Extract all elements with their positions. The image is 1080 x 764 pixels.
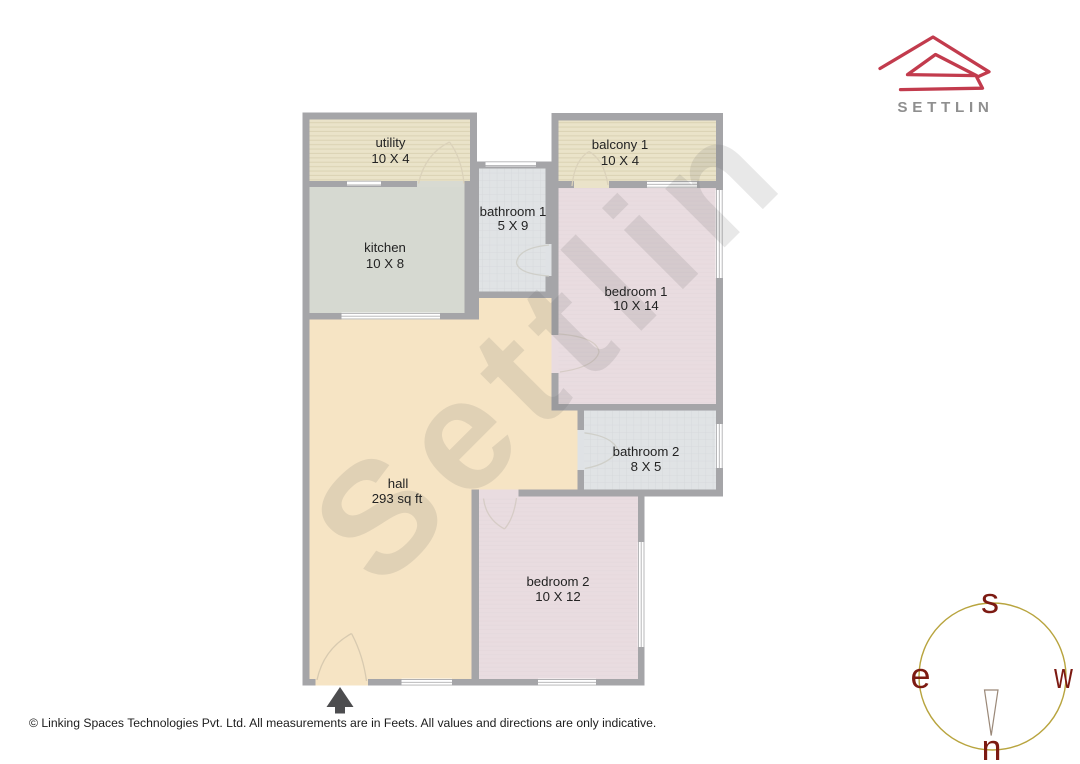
svg-text:hall: hall <box>388 476 409 491</box>
svg-text:utility: utility <box>375 135 405 150</box>
svg-text:10 X 4: 10 X 4 <box>601 153 639 168</box>
svg-text:bedroom 1: bedroom 1 <box>604 284 667 299</box>
svg-text:bathroom 1: bathroom 1 <box>480 204 547 219</box>
svg-text:8 X 5: 8 X 5 <box>631 459 662 474</box>
svg-text:10 X 14: 10 X 14 <box>613 298 658 313</box>
svg-text:10 X 12: 10 X 12 <box>535 589 580 604</box>
svg-text:293 sq ft: 293 sq ft <box>372 491 423 506</box>
svg-text:bedroom 2: bedroom 2 <box>526 574 589 589</box>
svg-text:w: w <box>1053 656 1073 696</box>
svg-text:s: s <box>981 580 999 621</box>
svg-text:kitchen: kitchen <box>364 240 406 255</box>
svg-text:bathroom 2: bathroom 2 <box>613 444 680 459</box>
svg-text:SETTLIN: SETTLIN <box>897 99 993 116</box>
svg-text:© Linking Spaces Technologies: © Linking Spaces Technologies Pvt. Ltd. … <box>29 716 656 730</box>
svg-text:10 X 4: 10 X 4 <box>371 151 409 166</box>
svg-text:balcony 1: balcony 1 <box>592 137 648 152</box>
svg-text:e: e <box>910 655 930 696</box>
svg-text:5 X 9: 5 X 9 <box>498 218 529 233</box>
svg-text:10 X 8: 10 X 8 <box>366 256 404 271</box>
svg-text:n: n <box>981 727 1001 764</box>
